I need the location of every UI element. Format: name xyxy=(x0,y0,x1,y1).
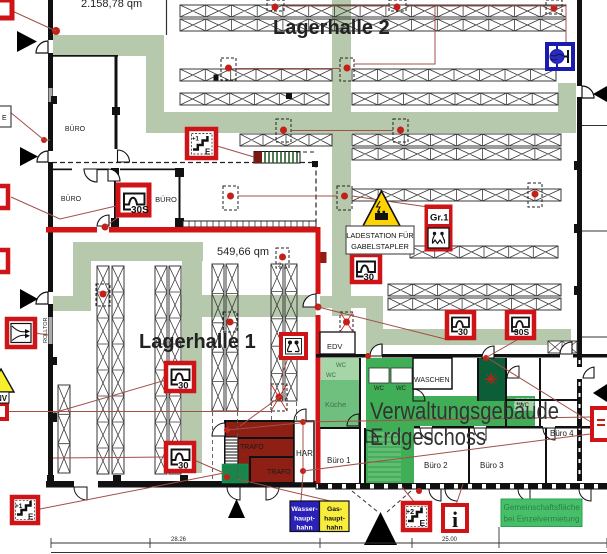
svg-text:E: E xyxy=(28,513,34,522)
svg-text:549,66 qm: 549,66 qm xyxy=(217,246,269,258)
svg-text:Büro 4: Büro 4 xyxy=(550,429,574,438)
svg-text:ROLLTOR: ROLLTOR xyxy=(43,318,49,343)
svg-text:LADESTATION FÜR: LADESTATION FÜR xyxy=(346,231,413,240)
svg-text:hahn: hahn xyxy=(296,525,312,532)
svg-text:30S: 30S xyxy=(131,205,149,216)
svg-text:+1: +1 xyxy=(192,137,200,143)
svg-text:Gr.1: Gr.1 xyxy=(430,213,449,224)
svg-text:30: 30 xyxy=(364,272,375,283)
svg-text:haupt-: haupt- xyxy=(324,516,345,523)
svg-text:WC: WC xyxy=(374,386,385,392)
svg-text:E: E xyxy=(205,148,211,157)
svg-text:bei Einzelvermietung: bei Einzelvermietung xyxy=(504,515,580,524)
svg-text:BÜRO: BÜRO xyxy=(65,125,86,133)
svg-text:WASCHEN: WASCHEN xyxy=(414,377,450,384)
svg-text:WC: WC xyxy=(396,386,407,392)
svg-text:25.00: 25.00 xyxy=(442,537,458,543)
svg-text:EDV: EDV xyxy=(327,342,342,351)
svg-text:WC: WC xyxy=(336,363,347,369)
svg-text:Gas-: Gas- xyxy=(327,506,342,513)
svg-text:BÜRO: BÜRO xyxy=(61,195,82,203)
svg-text:BÜRO: BÜRO xyxy=(155,195,177,204)
svg-text:TRAFO: TRAFO xyxy=(240,444,264,451)
svg-text:Büro 3: Büro 3 xyxy=(480,461,504,470)
svg-text:28.26: 28.26 xyxy=(171,537,187,543)
svg-text:HAR: HAR xyxy=(296,449,313,458)
svg-text:Büro 2: Büro 2 xyxy=(424,461,448,470)
svg-text:NV: NV xyxy=(0,394,8,403)
svg-text:30: 30 xyxy=(178,381,189,392)
svg-text:Küche: Küche xyxy=(325,400,346,409)
svg-text:GABELSTAPLER: GABELSTAPLER xyxy=(351,242,409,251)
svg-text:2.158,78 qm: 2.158,78 qm xyxy=(81,0,142,10)
svg-text:Verwaltungsgebäude: Verwaltungsgebäude xyxy=(370,398,559,425)
svg-text:WC: WC xyxy=(326,373,337,379)
svg-text:WC: WC xyxy=(519,403,530,409)
svg-text:E: E xyxy=(2,115,7,122)
svg-text:Wasser-: Wasser- xyxy=(291,506,317,513)
svg-text:hahn: hahn xyxy=(326,525,342,532)
svg-text:+1: +1 xyxy=(15,503,23,510)
svg-text:Büro 1: Büro 1 xyxy=(327,456,351,465)
svg-text:Lagerhalle 1: Lagerhalle 1 xyxy=(139,331,256,353)
svg-text:Erdgeschoss: Erdgeschoss xyxy=(370,424,486,451)
svg-text:30: 30 xyxy=(458,327,468,337)
svg-text:30S: 30S xyxy=(514,327,529,337)
svg-text:i: i xyxy=(452,507,458,532)
svg-text:haupt-: haupt- xyxy=(294,516,315,523)
svg-text:Gemeinschaftsfläche: Gemeinschaftsfläche xyxy=(504,503,581,512)
svg-text:Lagerhalle 2: Lagerhalle 2 xyxy=(273,17,390,39)
svg-text:30: 30 xyxy=(178,461,189,472)
svg-text:TRAFO: TRAFO xyxy=(267,469,291,476)
svg-text:E: E xyxy=(420,518,426,528)
svg-text:+2: +2 xyxy=(406,509,414,516)
